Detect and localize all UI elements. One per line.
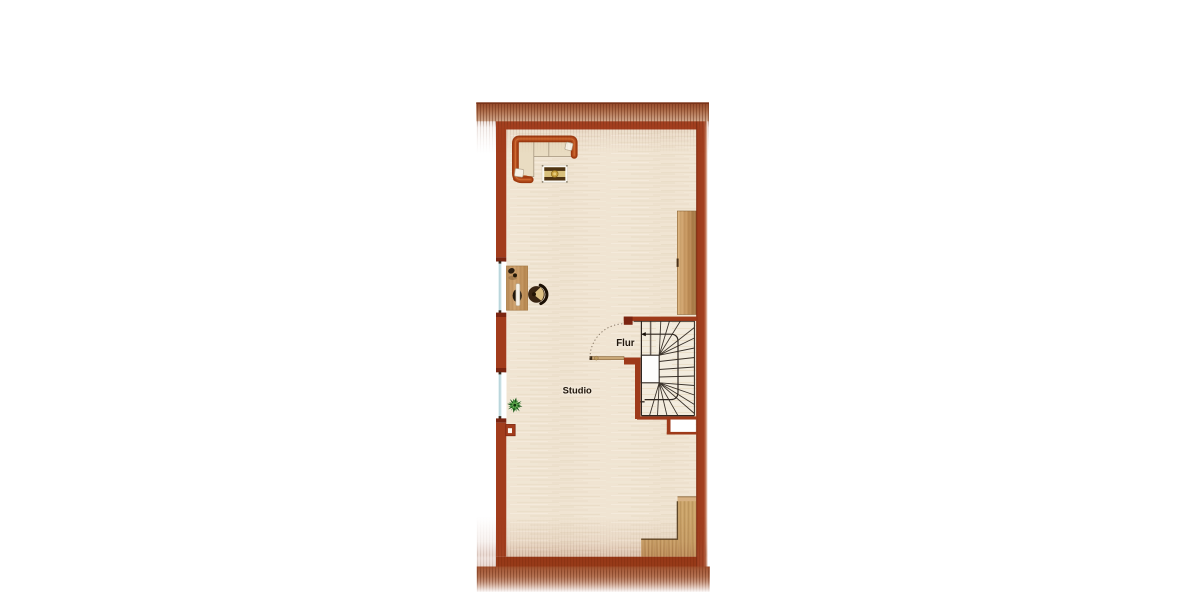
svg-text:Studio: Studio xyxy=(563,385,592,396)
svg-text:Flur: Flur xyxy=(616,338,635,349)
